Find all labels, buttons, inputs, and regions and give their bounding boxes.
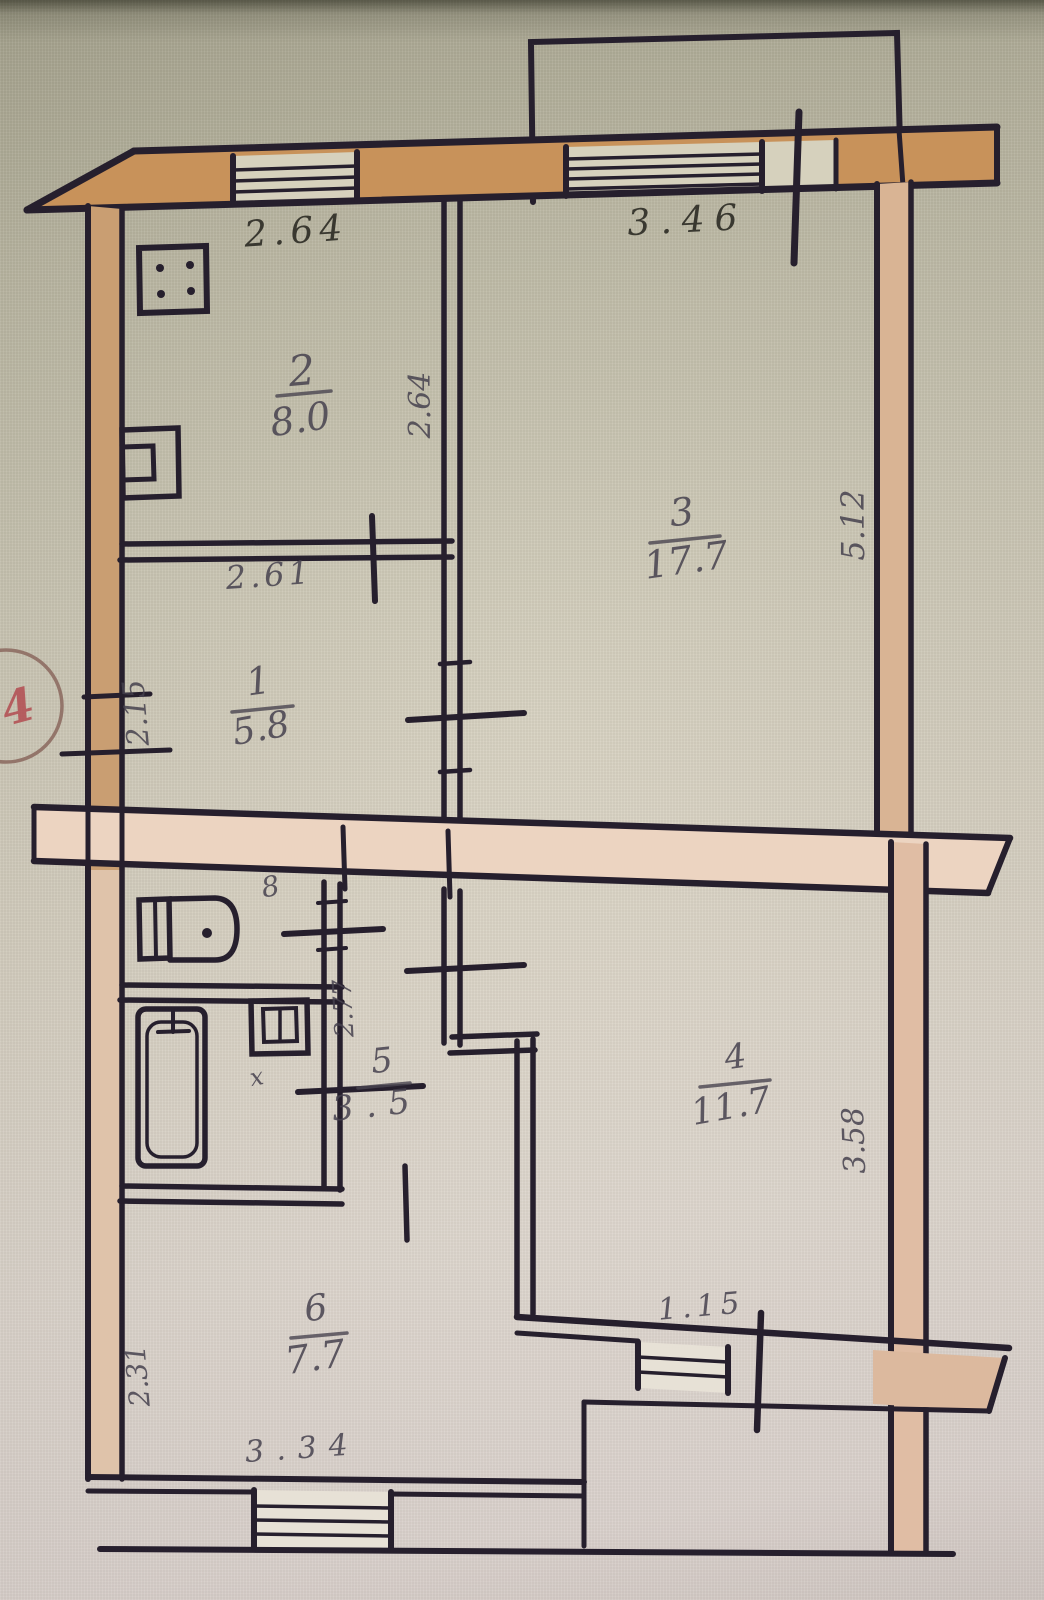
wall-jog [450, 1050, 535, 1053]
room5-number: 5 [369, 1040, 395, 1082]
right-wall-lower-fill [891, 842, 926, 1551]
dim-right-wall-lower: 3.58 [836, 1106, 873, 1174]
bathtub-tap-mark [158, 1031, 189, 1032]
stamp-number: 4 [0, 676, 40, 736]
dim-wc-door: 8 [259, 869, 282, 905]
toilet-tank-line [155, 900, 156, 958]
scanned-floor-plan-photo: 4 2.64 3.46 2.64 2.61 5.12 2.15 8 2.77 x… [0, 0, 1044, 1600]
door-leaf-wc [284, 929, 383, 934]
dim-top-left: 2.64 [242, 207, 350, 255]
room2-number: 2 [285, 345, 317, 396]
door-tick-room2 [372, 516, 375, 601]
wall-room6-bottom-inner [88, 1491, 254, 1492]
flue-box-inner [122, 446, 154, 480]
vent-dot [187, 287, 195, 295]
door-leaf-room3 [408, 713, 524, 720]
wall-room4-bottom-inner [517, 1333, 638, 1341]
dim-right-wall-upper: 5.12 [834, 489, 872, 560]
room1-number: 1 [243, 658, 273, 705]
door-jamb [318, 948, 346, 950]
opening-tick-room6 [405, 1166, 407, 1240]
wall-room6-bottom [88, 1477, 584, 1482]
wall-tick-through-slab [343, 827, 345, 889]
room3-area: 17.7 [641, 532, 732, 587]
vent-dot [157, 290, 165, 298]
vent-dot [186, 261, 194, 269]
wall-bath-room6 [120, 1201, 342, 1204]
left-wall-fade [88, 870, 122, 1479]
room3-number: 3 [667, 489, 696, 535]
toilet-bowl-icon [170, 898, 237, 960]
room1-area: 5.8 [229, 704, 293, 754]
wall-tick-through-slab [448, 831, 450, 897]
room2-area: 8.0 [267, 393, 333, 445]
right-wall-upper-fill [877, 182, 911, 842]
wall-room2-room1 [122, 541, 452, 544]
vent-dot [156, 264, 164, 272]
toilet-drain-dot [202, 928, 212, 938]
dim-room6-left: 2.31 [118, 1343, 156, 1409]
apartment-floor-plan: 4 2.64 3.46 2.64 2.61 5.12 2.15 8 2.77 x… [0, 0, 1044, 1600]
door-jamb [318, 901, 346, 903]
dim-room1-top: 2.61 [223, 553, 314, 597]
party-wall-tick-top [794, 112, 799, 263]
dim-balcony-door: 1.15 [656, 1285, 746, 1327]
room6-area: 7.7 [282, 1331, 349, 1383]
bathtub-inner [147, 1022, 197, 1157]
wall-balcony-fill [873, 1350, 1005, 1411]
room5-area: 3.5 [330, 1080, 424, 1129]
wall-room6-bottom-inner [391, 1494, 584, 1496]
room4-number: 4 [721, 1036, 749, 1079]
wall-jog [452, 1034, 537, 1037]
dim-left-wall-hall: 2.15 [116, 678, 157, 749]
dim-corridor-wall: 2.77 [327, 978, 360, 1039]
left-wall-door-tick [62, 750, 170, 754]
window-hatch [254, 1506, 391, 1508]
door-leaf-room4 [407, 965, 524, 971]
balcony-door-tick [757, 1313, 761, 1430]
vent-shaft-icon [139, 246, 207, 313]
wall-bath-room6 [122, 1186, 342, 1189]
building-bottom-line [100, 1549, 953, 1554]
flue-box-icon [122, 428, 179, 498]
window-hatch [254, 1520, 391, 1522]
dim-room2-right-wall: 2.64 [403, 372, 438, 440]
window-hatch [254, 1534, 391, 1536]
wall-wc-bath [122, 985, 342, 987]
dim-top-right: 3.46 [626, 197, 748, 244]
door-jamb [440, 662, 470, 664]
door-jamb [440, 770, 470, 772]
room6-number: 6 [302, 1287, 329, 1330]
bath-cross-mark: x [248, 1062, 267, 1092]
dim-room6-bottom: 3.34 [244, 1427, 361, 1470]
window-room4 [638, 1342, 728, 1393]
